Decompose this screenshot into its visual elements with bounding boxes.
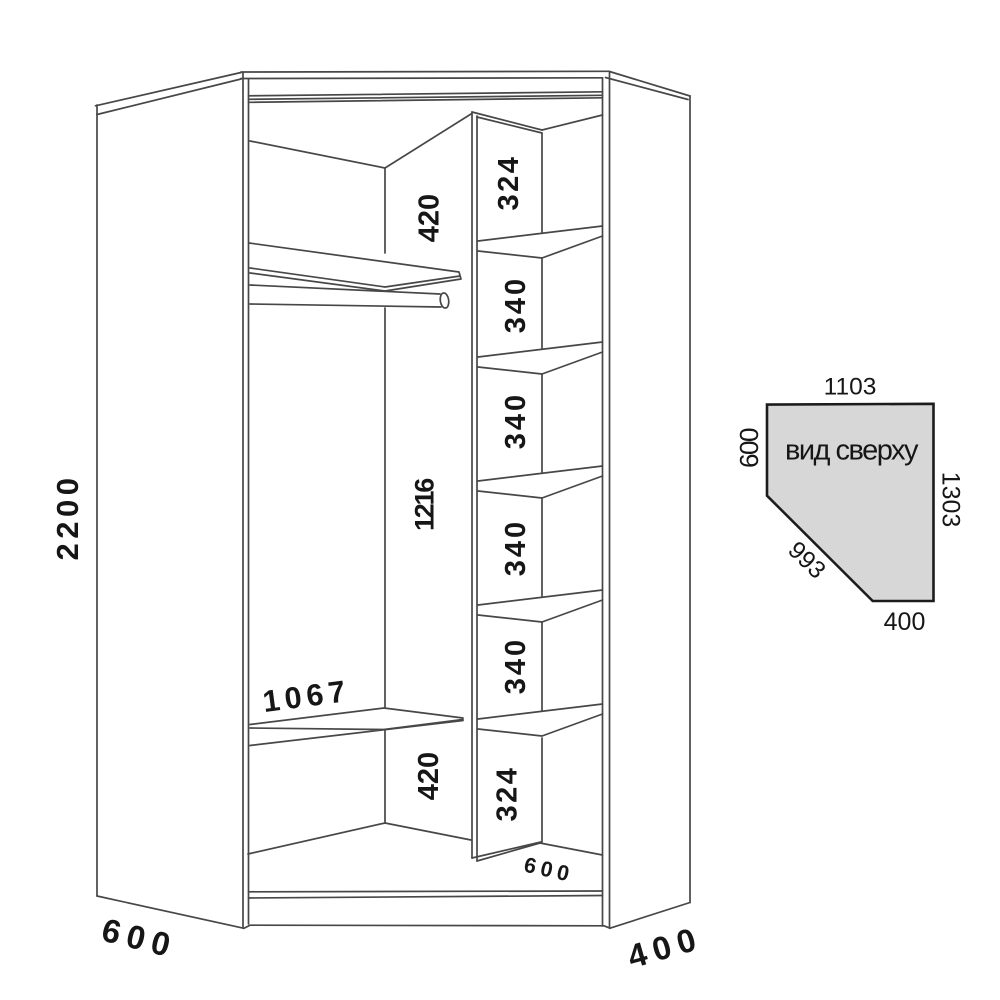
svg-text:340: 340 — [500, 392, 532, 449]
svg-text:324: 324 — [492, 766, 524, 822]
svg-text:1067: 1067 — [261, 674, 353, 719]
svg-text:1303: 1303 — [937, 472, 965, 528]
svg-text:340: 340 — [500, 276, 532, 333]
svg-text:340: 340 — [500, 519, 532, 576]
svg-text:1216: 1216 — [410, 478, 440, 531]
svg-text:324: 324 — [493, 155, 525, 211]
svg-text:1103: 1103 — [824, 374, 877, 401]
svg-text:вид сверху: вид сверху — [785, 435, 919, 467]
svg-text:420: 420 — [414, 194, 446, 242]
svg-text:2200: 2200 — [50, 474, 85, 561]
svg-text:400: 400 — [623, 919, 706, 976]
svg-text:340: 340 — [500, 637, 532, 694]
svg-text:420: 420 — [413, 752, 445, 800]
svg-text:600: 600 — [98, 911, 181, 965]
svg-text:600: 600 — [734, 428, 764, 468]
svg-text:600: 600 — [522, 853, 576, 887]
svg-text:400: 400 — [884, 608, 926, 636]
